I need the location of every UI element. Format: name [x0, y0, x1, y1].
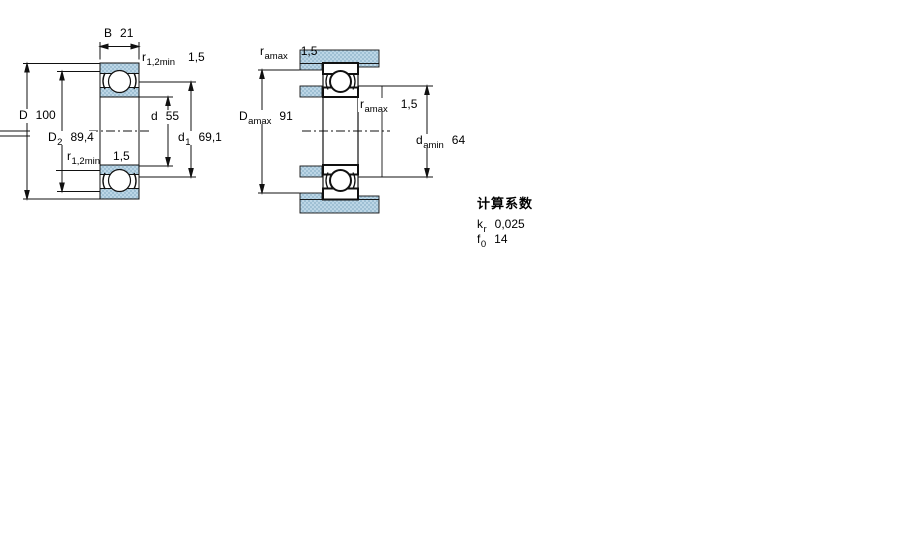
bearing-drawing-stage: B21 r1,2min1,5 D100 D289,4 r1,2min1,5 d5… — [0, 0, 900, 560]
dim-ra-top-subscript: amax — [265, 51, 288, 62]
dim-label-d1: d169,1 — [176, 131, 224, 145]
dim-d1-symbol: d — [178, 130, 185, 144]
dim-label-r12-bottom: r1,2min1,5 — [67, 150, 130, 164]
dim-label-D: D100 — [17, 109, 58, 123]
dim-ra-mid-symbol: r — [360, 97, 364, 111]
dim-Da-symbol: D — [239, 109, 248, 123]
dim-d-symbol: d — [151, 109, 158, 123]
dim-label-Da: Damax91 — [237, 110, 295, 124]
dim-label-B: B21 — [104, 27, 133, 41]
dim-Da-subscript: amax — [248, 116, 271, 127]
dim-da-value: 64 — [452, 133, 465, 147]
factor-f0-value: 14 — [494, 232, 507, 246]
dim-D2-symbol: D — [48, 130, 57, 144]
factor-kr-symbol: k — [477, 217, 483, 231]
dim-D-symbol: D — [19, 108, 28, 122]
dim-label-da: damin64 — [414, 134, 467, 148]
technical-drawing — [0, 0, 900, 560]
dim-Da-value: 91 — [279, 109, 292, 123]
calculation-factors-heading: 计算系数 — [477, 197, 533, 212]
dim-d1-subscript: 1 — [185, 137, 190, 148]
factor-kr-value: 0,025 — [495, 217, 525, 231]
right-bearing-cross-section — [302, 63, 390, 200]
dim-label-d: d55 — [149, 110, 181, 124]
dim-label-ra-top: ramax1,5 — [260, 45, 317, 59]
dim-ra-top-symbol: r — [260, 44, 264, 58]
dim-label-ra-mid: ramax1,5 — [358, 98, 419, 112]
dim-d-value: 55 — [166, 109, 179, 123]
dim-da-subscript: amin — [423, 140, 444, 151]
dim-D2-subscript: 2 — [57, 137, 62, 148]
factor-f0: f014 — [477, 233, 508, 247]
dim-r12-top-symbol: r — [142, 50, 146, 64]
dim-r12-bottom-subscript: 1,2min — [72, 156, 101, 167]
dim-r12-top-subscript: 1,2min — [147, 57, 176, 68]
dim-ra-mid-value: 1,5 — [401, 97, 418, 111]
factor-kr: kr0,025 — [477, 218, 525, 232]
factor-f0-subscript: 0 — [481, 239, 486, 250]
dim-d1-value: 69,1 — [198, 130, 221, 144]
dim-label-r12-top: r1,2min1,5 — [142, 51, 205, 65]
dim-r12-bottom-value: 1,5 — [113, 149, 130, 163]
dim-da-symbol: d — [416, 133, 423, 147]
dim-r12-bottom-symbol: r — [67, 149, 71, 163]
dim-r12-top-value: 1,5 — [188, 50, 205, 64]
dim-ra-top-value: 1,5 — [301, 44, 318, 58]
dim-label-D2: D289,4 — [46, 131, 96, 145]
dim-D2-value: 89,4 — [70, 130, 93, 144]
dim-ra-mid-subscript: amax — [365, 104, 388, 115]
dim-B-symbol: B — [104, 26, 112, 40]
dim-B-value: 21 — [120, 26, 133, 40]
dim-D-value: 100 — [36, 108, 56, 122]
factor-f0-symbol: f — [477, 232, 480, 246]
